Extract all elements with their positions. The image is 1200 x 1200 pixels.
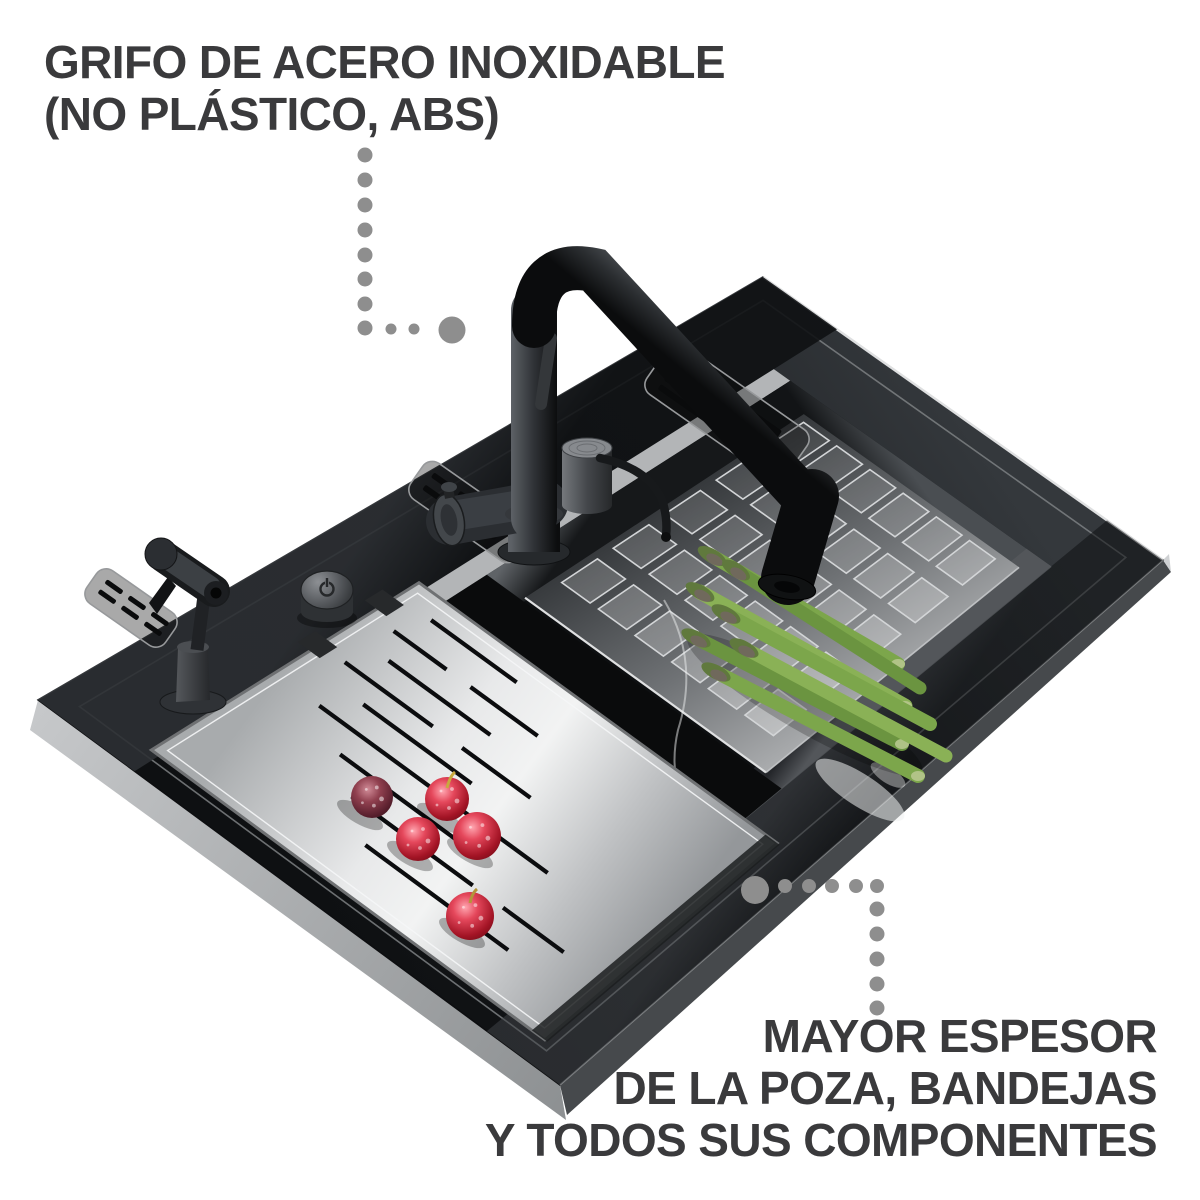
annotation-thickness-line1: MAYOR ESPESOR	[485, 1010, 1157, 1062]
plum	[351, 776, 393, 818]
leader-dots-top	[358, 148, 466, 344]
mixer-button	[441, 482, 457, 492]
annotation-thickness-line2: DE LA POZA, BANDEJAS	[485, 1062, 1157, 1114]
faucet-spout-head	[788, 496, 812, 578]
annotation-faucet-line1: GRIFO DE ACERO INOXIDABLE	[44, 36, 725, 88]
plum	[453, 812, 501, 860]
touch-control-button	[297, 571, 357, 628]
leader-dots-bottom	[741, 876, 885, 1016]
annotation-thickness-line3: Y TODOS SUS COMPONENTES	[485, 1114, 1157, 1166]
annotation-faucet-line2: (NO PLÁSTICO, ABS)	[44, 88, 725, 140]
plum	[396, 817, 440, 861]
annotation-thickness: MAYOR ESPESOR DE LA POZA, BANDEJAS Y TOD…	[485, 1010, 1157, 1166]
annotation-faucet-material: GRIFO DE ACERO INOXIDABLE (NO PLÁSTICO, …	[44, 36, 725, 140]
product-image: GRIFO DE ACERO INOXIDABLE (NO PLÁSTICO, …	[0, 0, 1200, 1200]
